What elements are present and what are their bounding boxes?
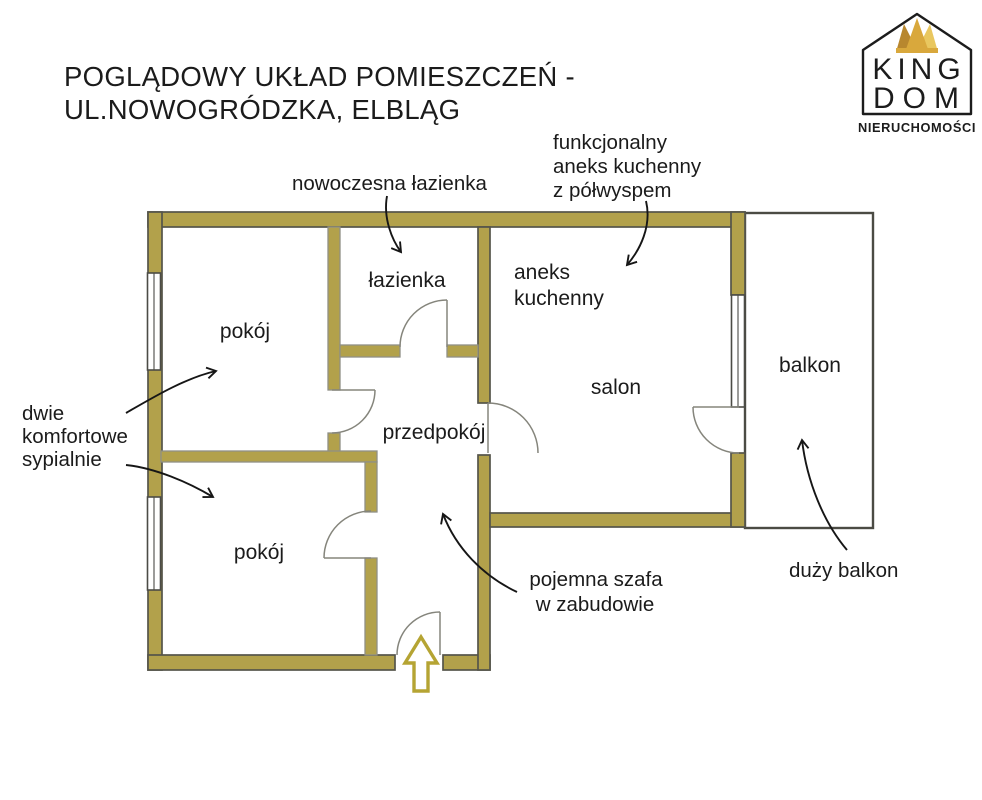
wall-top — [148, 212, 745, 227]
annotation-wardrobe-line2: w zabudowie — [535, 593, 655, 616]
room-label-kitchenette-line1: aneks — [514, 261, 570, 284]
wall-living-bottom — [490, 513, 745, 527]
door-room2 — [324, 511, 371, 558]
door-balcony — [693, 407, 739, 453]
wall-between-rooms — [161, 451, 377, 462]
wall-room2-right-lower — [365, 558, 377, 655]
wall-living-right-upper — [731, 212, 745, 295]
room-label-kitchenette-line2: kuchenny — [514, 287, 604, 310]
door-living — [488, 403, 538, 453]
arrow-to-kitchenette — [627, 201, 648, 265]
wall-hall-right-upper — [478, 227, 490, 403]
floor-plan: pokój łazienka aneks kuchenny salon prze… — [0, 0, 982, 800]
annotation-bedrooms-line1: dwie — [22, 402, 64, 425]
room-label-bathroom: łazienka — [368, 269, 445, 292]
wall-bottom-left — [148, 655, 395, 670]
annotation-kitchenette-line2: aneks kuchenny — [553, 155, 702, 178]
room-label-living: salon — [591, 376, 641, 399]
annotation-bedrooms-line2: komfortowe — [22, 425, 128, 448]
wall-living-right-lower — [731, 453, 745, 527]
room-label-hallway: przedpokój — [383, 421, 486, 444]
room-label-balcony: balkon — [779, 354, 841, 377]
wall-room1-right-stub — [328, 433, 340, 452]
window-living-balcony — [732, 295, 745, 407]
entrance-arrow-icon — [405, 637, 437, 691]
annotation-bathroom: nowoczesna łazienka — [292, 172, 487, 195]
window-room2 — [148, 497, 161, 590]
door-bathroom — [400, 300, 447, 347]
arrow-to-room1 — [126, 371, 216, 413]
annotation-balcony: duży balkon — [789, 559, 898, 582]
annotation-kitchenette-line1: funkcjonalny — [553, 131, 668, 154]
annotation-wardrobe-line1: pojemna szafa — [529, 568, 663, 591]
wall-bathroom-bottom-left — [340, 345, 400, 357]
room-label-room1: pokój — [220, 320, 270, 343]
wall-room2-right-upper — [365, 462, 377, 512]
wall-hall-right-lower — [478, 455, 490, 670]
window-room1 — [148, 273, 161, 370]
annotation-bedrooms-line3: sypialnie — [22, 448, 102, 471]
annotation-kitchenette-line3: z półwyspem — [553, 179, 672, 202]
door-room1 — [332, 390, 375, 433]
room-label-room2: pokój — [234, 541, 284, 564]
arrow-to-room2 — [126, 465, 213, 497]
wall-room1-right — [328, 227, 340, 390]
wall-bathroom-bottom-right — [447, 345, 478, 357]
